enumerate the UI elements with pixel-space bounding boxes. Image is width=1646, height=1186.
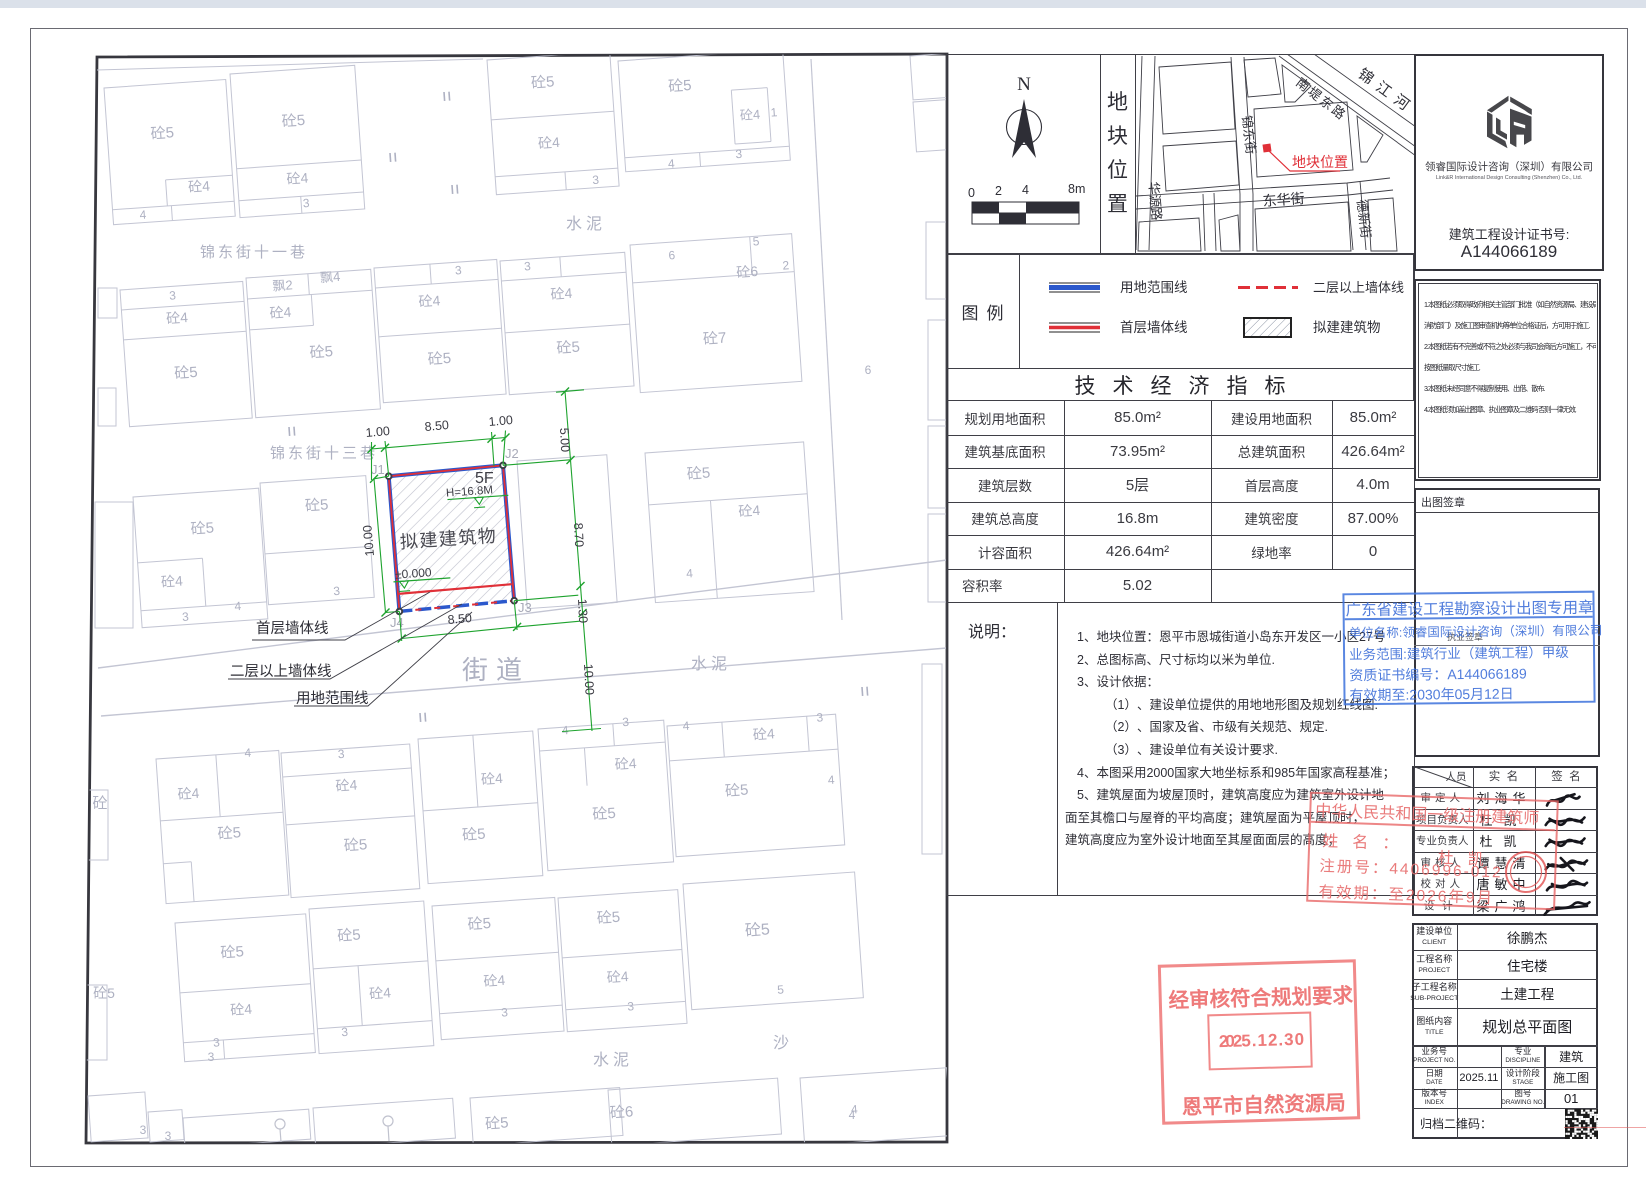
- svg-text:飘2: 飘2: [272, 277, 293, 293]
- svg-text:4: 4: [234, 599, 242, 613]
- svg-text:砼5: 砼5: [462, 826, 486, 845]
- svg-text:砼4: 砼4: [335, 776, 358, 793]
- svg-text:砼4: 砼4: [286, 169, 309, 186]
- svg-text:砼5: 砼5: [190, 519, 214, 538]
- svg-text:3: 3: [524, 259, 532, 273]
- svg-text:4: 4: [1022, 183, 1029, 197]
- svg-text:3: 3: [208, 1050, 215, 1064]
- svg-text:用地范围线: 用地范围线: [1120, 280, 1188, 295]
- svg-text:6: 6: [668, 248, 676, 262]
- svg-text:水泥: 水泥: [691, 655, 731, 673]
- svg-text:3: 3: [622, 715, 630, 729]
- svg-text:锦江河: 锦江河: [1355, 65, 1416, 118]
- svg-text:砼5: 砼5: [343, 836, 367, 855]
- svg-text:街道: 街道: [462, 655, 530, 685]
- svg-text:8.50: 8.50: [447, 611, 473, 627]
- svg-text:水泥: 水泥: [566, 215, 606, 233]
- svg-text:砼5: 砼5: [281, 112, 305, 131]
- svg-text:砼6: 砼6: [609, 1103, 633, 1122]
- svg-text:二层以上墙体线: 二层以上墙体线: [230, 663, 332, 680]
- svg-text:1.00: 1.00: [488, 413, 514, 429]
- svg-text:沙: 沙: [773, 1035, 789, 1052]
- svg-text:3: 3: [140, 1123, 147, 1137]
- svg-text:5: 5: [752, 234, 760, 248]
- svg-text:1.00: 1.00: [365, 424, 391, 440]
- svg-text:3: 3: [627, 999, 635, 1013]
- svg-text:砼5: 砼5: [556, 339, 580, 358]
- svg-text:6: 6: [865, 363, 872, 377]
- svg-text:4: 4: [561, 723, 569, 737]
- svg-text:拟建建筑物: 拟建建筑物: [1313, 320, 1381, 335]
- svg-text:砼5: 砼5: [668, 77, 692, 96]
- svg-text:0: 0: [968, 186, 975, 200]
- svg-text:3: 3: [735, 147, 743, 161]
- svg-text:砼5: 砼5: [467, 915, 491, 934]
- svg-text:砼5: 砼5: [309, 343, 333, 362]
- svg-text:4: 4: [827, 773, 835, 787]
- svg-text:德新街: 德新街: [1354, 199, 1374, 240]
- svg-text:砼4: 砼4: [269, 304, 292, 321]
- svg-text:砼4: 砼4: [177, 785, 200, 802]
- svg-text:砼5: 砼5: [744, 920, 770, 940]
- svg-text:2: 2: [995, 184, 1002, 198]
- svg-text:10.00: 10.00: [360, 525, 377, 557]
- svg-text:3: 3: [302, 196, 310, 210]
- svg-text:砼5: 砼5: [337, 926, 361, 945]
- svg-text:砼5: 砼5: [592, 805, 616, 824]
- svg-text:首层墙体线: 首层墙体线: [1120, 320, 1188, 335]
- svg-text:砼4: 砼4: [188, 178, 211, 195]
- svg-text:砼5: 砼5: [724, 781, 748, 800]
- svg-text:4: 4: [686, 566, 694, 580]
- svg-text:8.70: 8.70: [571, 522, 586, 547]
- svg-text:南堤东路: 南堤东路: [1293, 75, 1350, 124]
- svg-text:3: 3: [455, 263, 463, 277]
- svg-text:砼4: 砼4: [738, 502, 761, 519]
- svg-text:砼4: 砼4: [550, 285, 573, 302]
- svg-text:砼4: 砼4: [230, 1001, 253, 1018]
- svg-text:东华街: 东华街: [1262, 190, 1305, 209]
- svg-text:砼5: 砼5: [485, 1114, 509, 1133]
- svg-text:砼5: 砼5: [686, 464, 710, 483]
- svg-text:3: 3: [333, 584, 341, 598]
- svg-text:3: 3: [165, 1129, 172, 1143]
- svg-text:砼5: 砼5: [596, 909, 620, 928]
- svg-text:3: 3: [213, 1035, 221, 1049]
- svg-text:砼4: 砼4: [161, 572, 184, 589]
- svg-text:4: 4: [244, 746, 252, 760]
- svg-text:2: 2: [782, 258, 790, 272]
- svg-text:飘4: 飘4: [320, 269, 341, 285]
- svg-text:10.00: 10.00: [581, 663, 597, 695]
- svg-text:3: 3: [341, 1025, 349, 1039]
- svg-text:3: 3: [169, 288, 177, 302]
- svg-text:砼5: 砼5: [530, 73, 554, 92]
- svg-text:8m: 8m: [1068, 182, 1085, 196]
- svg-text:砼5: 砼5: [93, 985, 115, 1001]
- svg-text:砼5: 砼5: [217, 824, 241, 843]
- svg-text:4: 4: [667, 156, 675, 170]
- svg-text:5: 5: [777, 982, 785, 996]
- svg-text:4: 4: [682, 719, 690, 733]
- svg-text:砼4: 砼4: [369, 984, 392, 1001]
- svg-text:砼4: 砼4: [614, 755, 637, 772]
- svg-text:砼5: 砼5: [174, 364, 198, 383]
- svg-text:1.30: 1.30: [575, 598, 590, 623]
- svg-text:砼4: 砼4: [418, 292, 441, 309]
- svg-text:砼6: 砼6: [736, 263, 759, 280]
- svg-text:3: 3: [816, 710, 824, 724]
- svg-text:二层以上墙体线: 二层以上墙体线: [1313, 280, 1404, 295]
- svg-text:砼5: 砼5: [150, 124, 174, 143]
- svg-text:砼7: 砼7: [703, 329, 727, 348]
- svg-text:地块位置: 地块位置: [1292, 154, 1348, 170]
- svg-text:砼4: 砼4: [483, 972, 506, 989]
- svg-text:1: 1: [770, 105, 778, 119]
- svg-text:5.00: 5.00: [557, 427, 572, 452]
- svg-text:锦东街十一巷: 锦东街十一巷: [200, 244, 308, 261]
- svg-text:砼4: 砼4: [752, 725, 775, 742]
- svg-text:3: 3: [501, 1005, 509, 1019]
- svg-text:3: 3: [337, 747, 345, 761]
- svg-text:J3: J3: [518, 600, 532, 615]
- svg-text:3: 3: [592, 173, 600, 187]
- svg-text:3: 3: [182, 610, 190, 624]
- svg-text:砼4: 砼4: [481, 770, 504, 787]
- svg-text:首层墙体线: 首层墙体线: [256, 620, 329, 637]
- svg-text:华源路: 华源路: [1146, 181, 1164, 221]
- svg-text:砼5: 砼5: [220, 943, 244, 962]
- svg-text:J2: J2: [505, 446, 519, 461]
- svg-text:4: 4: [139, 208, 147, 222]
- svg-text:水泥: 水泥: [593, 1051, 633, 1069]
- svg-text:用地范围线: 用地范围线: [296, 690, 369, 707]
- svg-text:4: 4: [849, 1108, 856, 1122]
- svg-text:砼4: 砼4: [537, 134, 560, 151]
- svg-text:锦东街: 锦东街: [1239, 115, 1259, 156]
- svg-text:砼4: 砼4: [739, 107, 760, 123]
- svg-text:N: N: [1017, 74, 1031, 95]
- svg-text:砼4: 砼4: [606, 968, 629, 985]
- svg-text:砼: 砼: [92, 795, 107, 812]
- svg-text:锦东街十三巷: 锦东街十三巷: [270, 445, 378, 462]
- svg-text:砼4: 砼4: [166, 309, 189, 326]
- svg-text:8.50: 8.50: [424, 418, 450, 434]
- svg-text:砼5: 砼5: [427, 350, 451, 369]
- svg-text:J4: J4: [390, 615, 404, 630]
- svg-text:砼5: 砼5: [304, 496, 328, 515]
